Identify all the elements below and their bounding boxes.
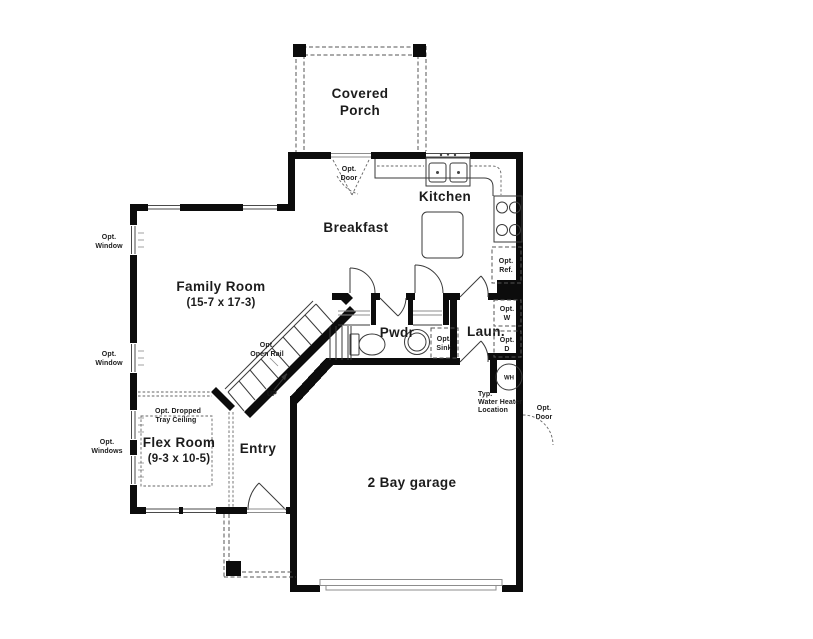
kitchen-label: Kitchen — [419, 189, 471, 204]
kitchen-fixtures: Opt. Ref. — [375, 153, 522, 283]
wall-closet-divider — [443, 300, 449, 325]
family-room-dims: (15-7 x 17-3) — [186, 297, 255, 309]
kitchen-island — [422, 212, 463, 258]
opt-windows-label: Windows — [91, 448, 122, 455]
entry-stoop — [224, 514, 296, 577]
garage-opt-door: Opt. Door — [523, 405, 553, 445]
floor-plan: Covered Porch — [0, 0, 813, 639]
flex-window — [183, 506, 216, 515]
wall-flex-diagonal — [211, 387, 235, 411]
opt-sink-label: Sink — [436, 345, 451, 352]
wh-note: Water Heater — [478, 399, 522, 406]
porch-post — [413, 44, 426, 57]
garage-label: 2 Bay garage — [368, 475, 457, 490]
opt-door-label: Door — [341, 175, 358, 182]
porch-label: Porch — [340, 103, 380, 118]
opt-window — [129, 455, 138, 485]
closet-door-arc — [350, 268, 375, 293]
powder-label: Pwdr — [380, 325, 415, 340]
wh-label: WH — [504, 376, 514, 382]
opt-window — [129, 410, 138, 440]
wall-powder-laundry — [450, 293, 457, 365]
powder-door — [380, 298, 398, 316]
entry-door-opening — [247, 506, 286, 515]
burner — [497, 225, 508, 236]
front-door-arc — [248, 483, 259, 510]
wall-garage-left — [290, 396, 297, 592]
family-window — [148, 203, 180, 212]
porch-opt-door: Opt. Door — [333, 160, 369, 195]
opt-window-label: Window — [95, 360, 123, 367]
tray-ceiling-box — [141, 416, 212, 486]
laundry-room: Laun. Opt. W Opt. D — [467, 300, 521, 357]
faucet — [440, 154, 442, 156]
open-rail-leader — [270, 358, 278, 366]
garage-entry-door-arc — [481, 341, 488, 362]
open-rail-label: Open Rail — [250, 351, 284, 358]
opt-door-right-label: Opt. — [537, 405, 551, 412]
sink-drain — [457, 171, 460, 174]
floor-plan-drawing: Covered Porch — [0, 0, 813, 639]
opt-window-label: Window — [95, 243, 123, 250]
flex-room: Opt. Dropped Tray Ceiling Flex Room (9-3… — [138, 392, 233, 507]
up-label: UP — [267, 391, 277, 398]
opt-window — [129, 225, 138, 255]
wall-fridge-nook — [497, 280, 523, 295]
wall-hall-south — [326, 358, 460, 365]
tray-ceiling-label: Opt. Dropped — [155, 408, 201, 415]
wh-note: Location — [478, 407, 508, 414]
family-window — [243, 203, 277, 212]
faucet — [447, 153, 449, 155]
front-door — [259, 483, 286, 510]
wall-jog — [288, 152, 295, 211]
opt-washer-label: Opt. — [500, 306, 514, 313]
covered-porch: Covered Porch — [293, 44, 426, 152]
tray-ceiling-label: Tray Ceiling — [156, 417, 197, 424]
hall-doors — [350, 265, 488, 362]
opt-door-right-label: Door — [536, 414, 553, 421]
water-heater: WH Typ. Water Heater Location — [478, 364, 522, 414]
flex-window — [146, 506, 179, 515]
opt-dryer-label: D — [504, 346, 509, 353]
powder-room: Opt. Sink Pwdr — [350, 325, 458, 358]
exterior-walls — [130, 152, 523, 592]
opt-window-labels: Opt. Window Opt. Window Opt. Windows — [91, 234, 123, 455]
staircase: UP Opt. Open Rail — [225, 301, 351, 411]
flex-dims: (9-3 x 10-5) — [148, 453, 210, 465]
entry-label: Entry — [240, 441, 277, 456]
flex-label: Flex Room — [143, 435, 216, 450]
opt-ref-label: Opt. — [499, 258, 513, 265]
garage-entry-door — [460, 341, 481, 362]
laundry-door — [460, 276, 481, 297]
sink-drain — [436, 171, 439, 174]
opt-windows-label: Opt. — [100, 439, 114, 446]
porch-door-opening — [331, 151, 371, 160]
laundry-door-arc — [481, 276, 488, 297]
opt-sink-label: Opt. — [437, 336, 451, 343]
opt-ref-label: Ref. — [499, 267, 513, 274]
powder-door-arc — [398, 298, 406, 316]
family-room-label: Family Room — [176, 279, 265, 294]
wall-closet-divider — [371, 293, 376, 325]
porch-post — [293, 44, 306, 57]
closet-door-arc — [415, 265, 443, 293]
breakfast-label: Breakfast — [323, 220, 388, 235]
faucet — [454, 154, 456, 156]
opt-window-label: Opt. — [102, 351, 116, 358]
opt-washer-label: W — [504, 315, 511, 322]
porch-label: Covered — [332, 86, 389, 101]
wall-closet-divider — [408, 293, 413, 325]
wall-top-kitchen — [288, 152, 523, 159]
burner — [497, 202, 508, 213]
interior-walls — [211, 280, 523, 418]
open-rail-label: Opt. — [260, 342, 274, 349]
wh-note: Typ. — [478, 391, 492, 398]
opt-dryer-label: Opt. — [500, 337, 514, 344]
stoop-post — [226, 561, 241, 576]
opt-window — [129, 343, 138, 373]
opt-door-label: Opt. — [342, 166, 356, 173]
opt-window-label: Opt. — [102, 234, 116, 241]
